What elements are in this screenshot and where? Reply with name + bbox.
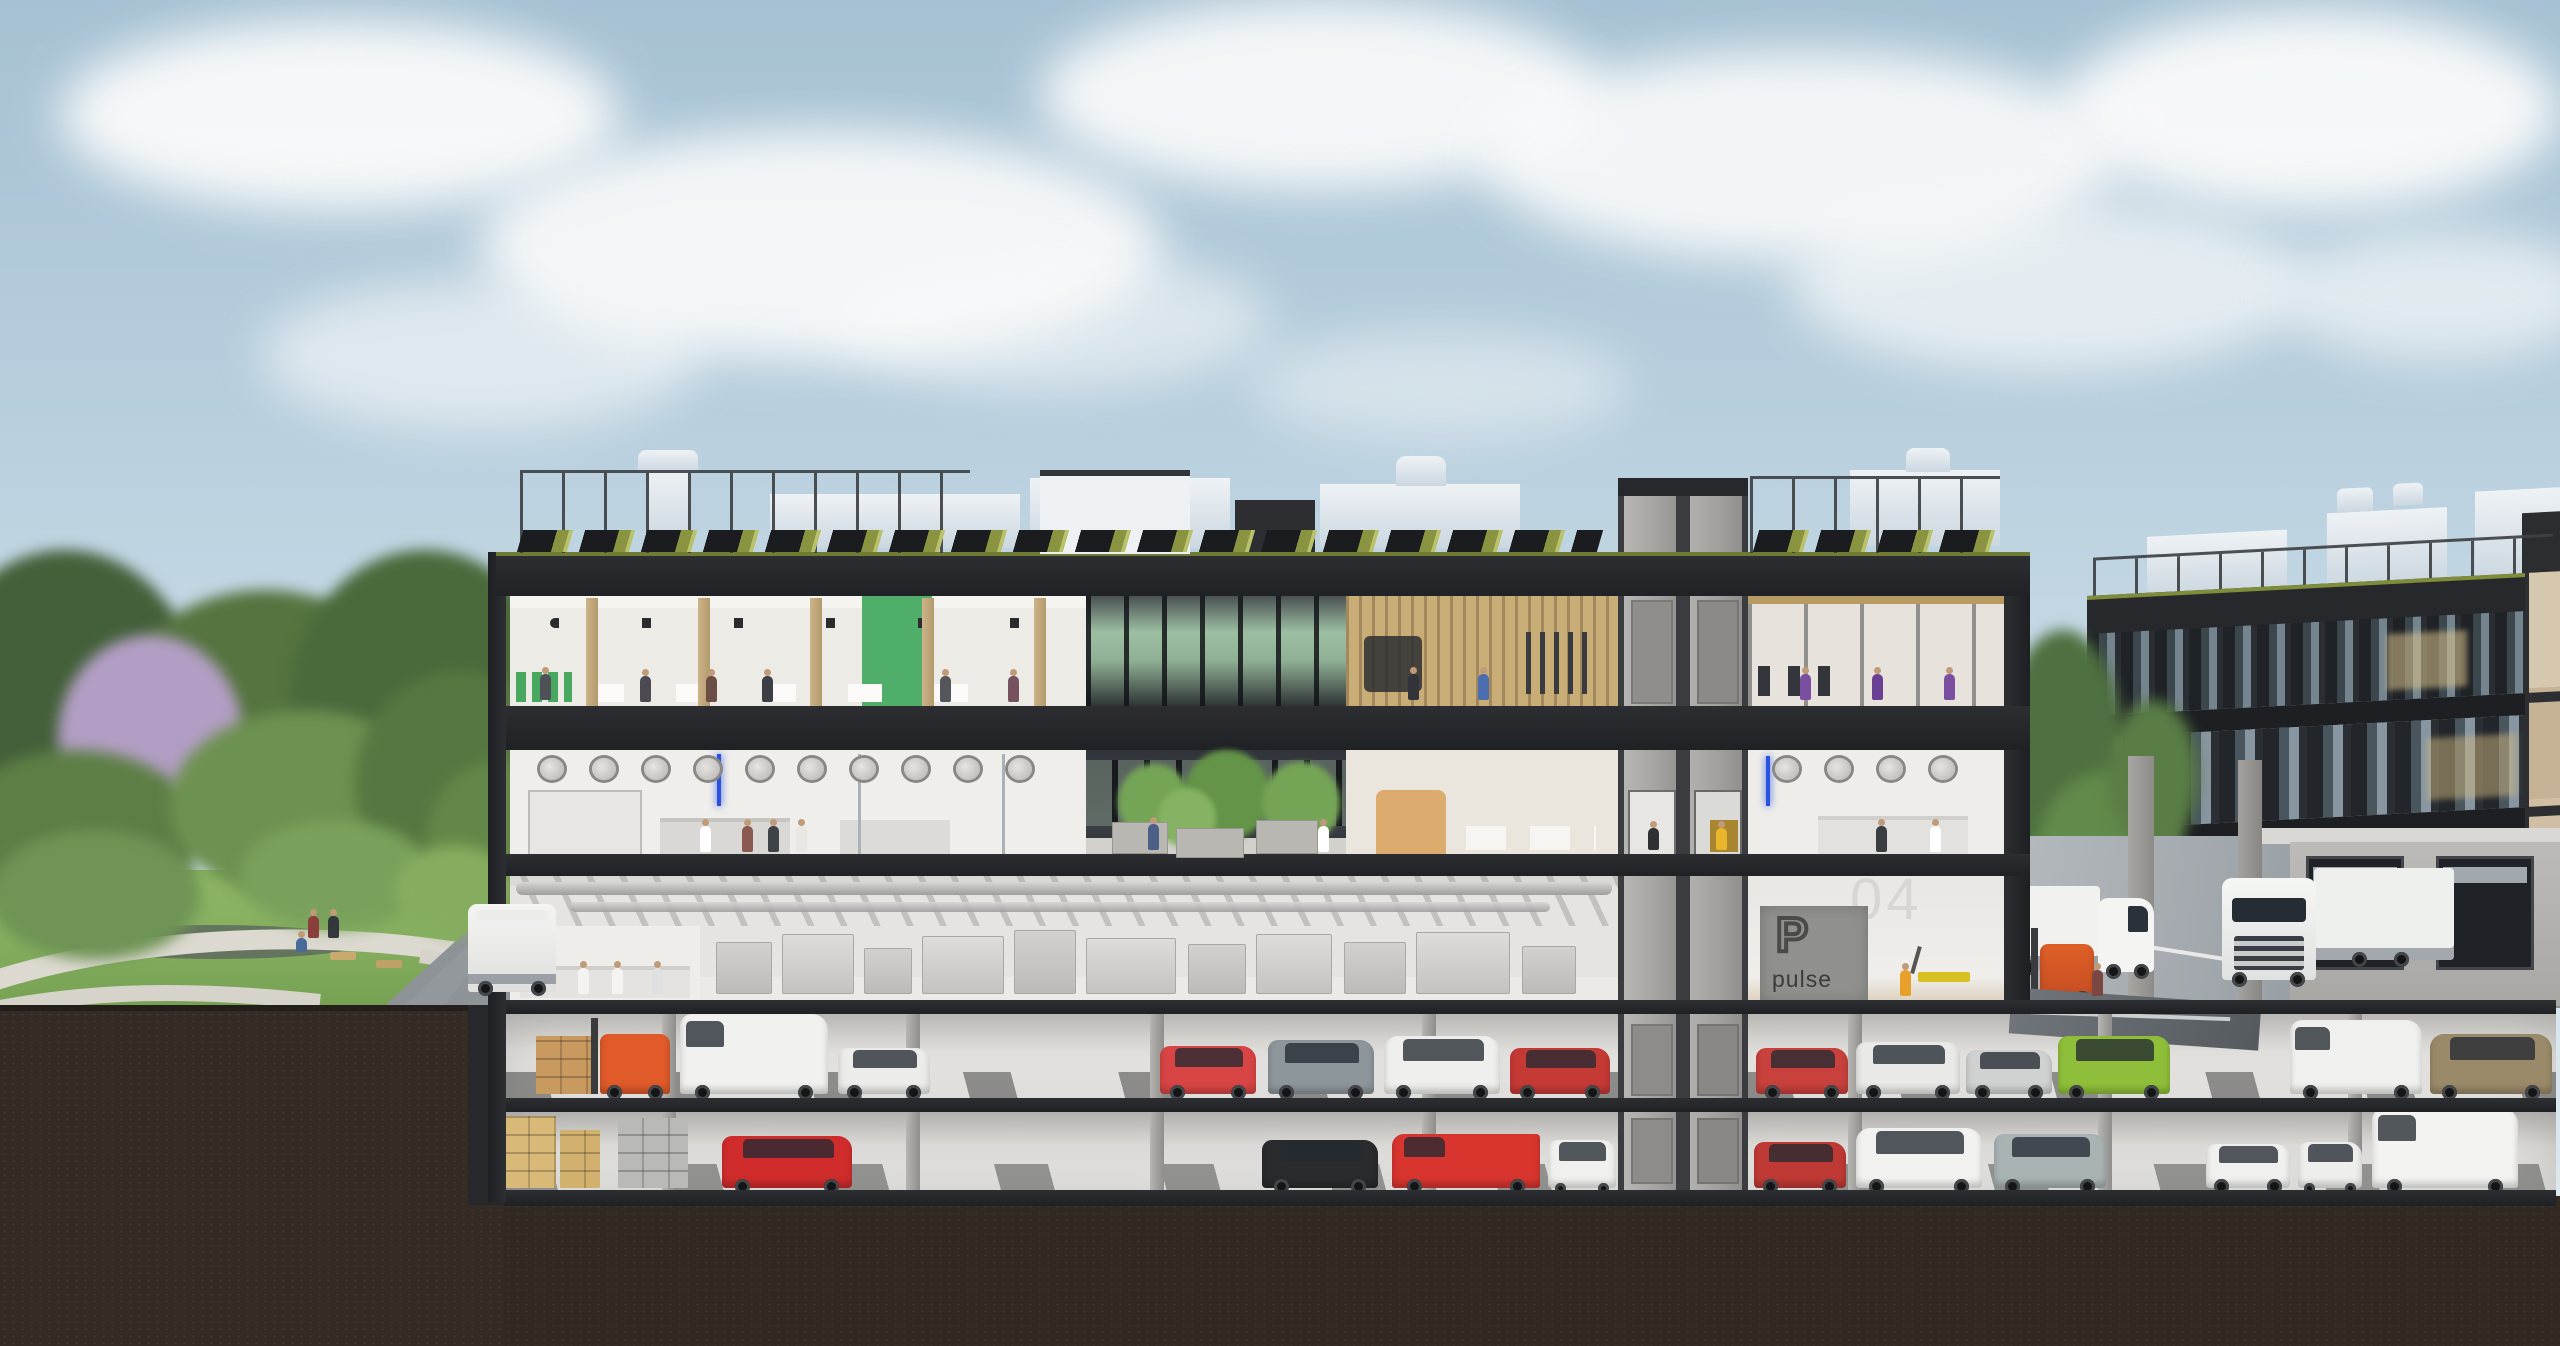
van-wheel <box>478 981 493 996</box>
van-roof-line <box>476 910 548 920</box>
canteen-interior <box>510 592 1086 710</box>
production-hall <box>510 876 1618 1002</box>
gym-rack <box>1526 632 1596 694</box>
elevator-door <box>1631 1118 1673 1184</box>
desk-cluster <box>1818 816 1968 854</box>
floor-slab-l1 <box>504 854 2030 876</box>
atrium-facade-mullions <box>1086 592 1346 710</box>
secondary-duct <box>570 902 1550 912</box>
led-strip <box>717 754 721 806</box>
pulse-sign-panel: P pulse <box>1760 906 1868 1002</box>
yoga-studio-interior <box>1748 592 2004 710</box>
rooftop-vent-hood <box>638 450 698 472</box>
rooftop-vent-hood <box>1906 448 1950 472</box>
roof-slab <box>496 552 2030 596</box>
cafeteria-tables <box>590 684 1010 702</box>
lab-interior-left <box>510 750 1086 856</box>
gym-wood-wall <box>1346 592 1618 710</box>
glass-partition <box>858 754 861 854</box>
pendant-lamps <box>550 618 1050 628</box>
green-chairs <box>516 672 572 702</box>
architectural-cross-section-scene: 04 P pulse <box>0 0 2560 1346</box>
exercise-bikes <box>1758 666 1848 696</box>
main-building-section: 04 P pulse <box>0 0 2560 1346</box>
desks <box>1466 826 1596 850</box>
elevator-door <box>1631 1024 1673 1096</box>
core-cap <box>1618 478 1748 496</box>
building-right-cut-edge <box>2004 592 2030 1004</box>
floor-slab-l2 <box>504 706 2030 750</box>
cargo-crate <box>1710 820 1738 852</box>
elevator-door <box>1697 1118 1739 1184</box>
elevator-door <box>1631 600 1673 704</box>
office-interior-mid <box>1346 750 1618 856</box>
solar-panel-array <box>1753 530 2005 552</box>
ground-slab <box>504 1000 2556 1014</box>
elevator-cab-open <box>1628 790 1676 858</box>
p1-slab <box>504 1098 2556 1112</box>
courtyard-glazing <box>1086 760 1346 826</box>
atrium-courtyard <box>1086 750 1346 856</box>
led-strip <box>1766 756 1770 806</box>
pallet-jack <box>1918 972 1970 982</box>
wood-partition <box>1376 790 1446 854</box>
elevator-door <box>1697 600 1739 704</box>
gym-equipment <box>1364 636 1422 692</box>
pulse-logo: P <box>1776 908 1808 963</box>
solar-panel-array <box>517 530 1603 552</box>
office-interior-right <box>1748 750 2004 856</box>
lab-bench <box>660 818 790 858</box>
elevator-cab-open <box>1694 790 1742 858</box>
main-duct <box>516 882 1612 895</box>
fume-hood <box>528 790 642 856</box>
white-delivery-van <box>468 904 556 992</box>
van-wheel <box>531 981 546 996</box>
rooftop-vent-hood <box>1396 456 1446 486</box>
building-left-cut-edge <box>488 552 506 1202</box>
glass-partition <box>1002 754 1005 854</box>
elevator-door <box>1697 1024 1739 1096</box>
foundation-slab <box>504 1190 2556 1206</box>
pulse-brand-text: pulse <box>1772 966 1832 993</box>
lab-bench <box>840 820 950 854</box>
